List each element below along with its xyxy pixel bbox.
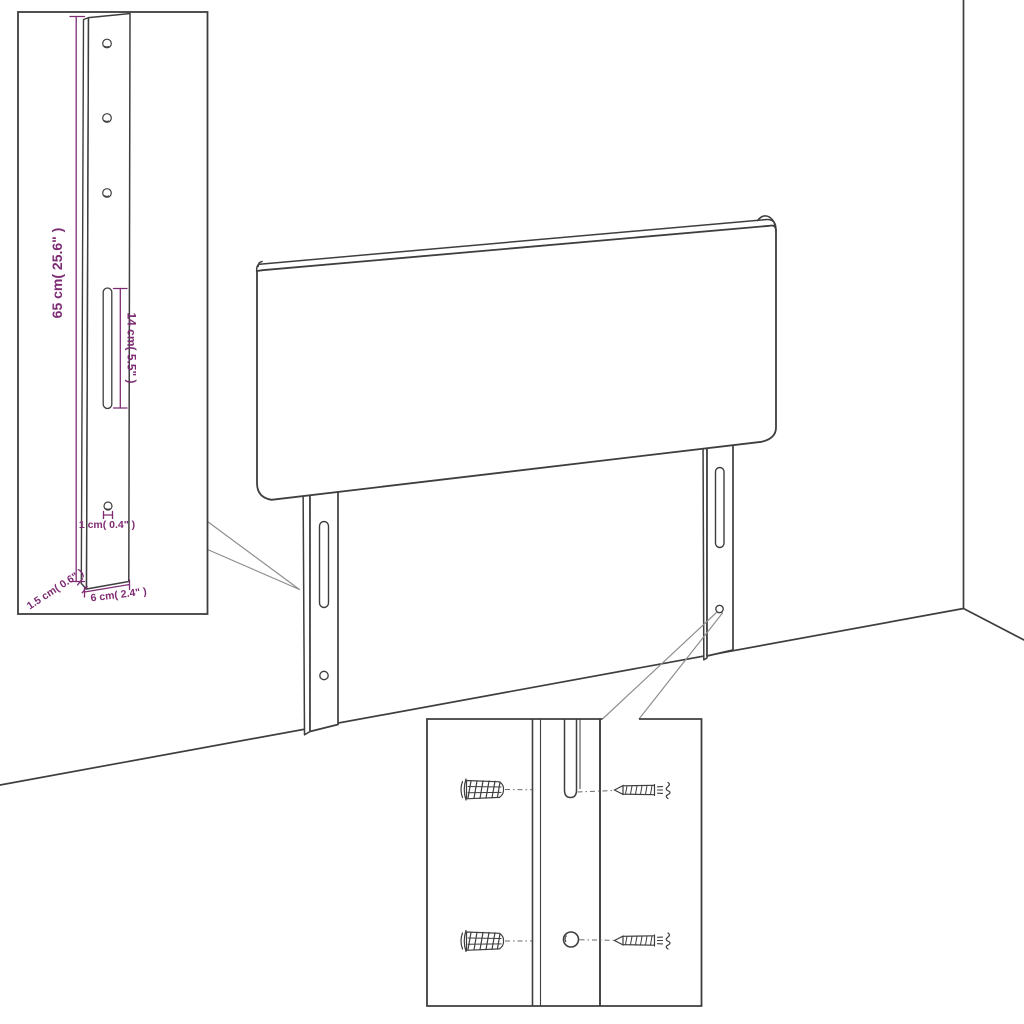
left-leg-hole (320, 671, 328, 679)
bracket-hole-2 (103, 114, 112, 123)
left-leg-slot (320, 522, 329, 608)
assembly-diagram: 65 cm( 25.6" ) 14 cm( 5.5" ) 1 cm( 0.4" … (0, 0, 1024, 1024)
right-leg-slot (716, 468, 725, 548)
dimension-slot-length-label: 14 cm( 5.5" ) (125, 312, 139, 383)
headboard (257, 216, 776, 500)
right-leg (703, 426, 733, 660)
dimension-hole-diameter-label: 1 cm( 0.4" ) (79, 519, 135, 531)
leg-detail-inset: 65 cm( 25.6" ) 14 cm( 5.5" ) 1 cm( 0.4" … (18, 12, 208, 614)
right-leg-hole (716, 605, 723, 612)
right-floor-line (964, 609, 1024, 641)
wall-plug-icon (461, 779, 504, 800)
bracket-hole-1 (103, 39, 112, 48)
wall-plug-icon (461, 931, 504, 952)
left-leg (303, 466, 338, 735)
leg-bracket-drawing (81, 14, 130, 590)
bracket-bottom-hole (104, 502, 112, 510)
left-inset-leader (208, 522, 300, 590)
dimension-total-height-label: 65 cm( 25.6" ) (49, 228, 65, 319)
assembly-diagram-page: 65 cm( 25.6" ) 14 cm( 5.5" ) 1 cm( 0.4" … (0, 0, 1024, 1024)
bracket-slot (103, 288, 112, 409)
bracket-hole-3 (103, 189, 112, 198)
leader-lines (208, 522, 723, 720)
mounting-detail-inset (427, 719, 702, 1006)
headboard-panel (257, 226, 776, 500)
left-leg-side-face (303, 470, 310, 735)
